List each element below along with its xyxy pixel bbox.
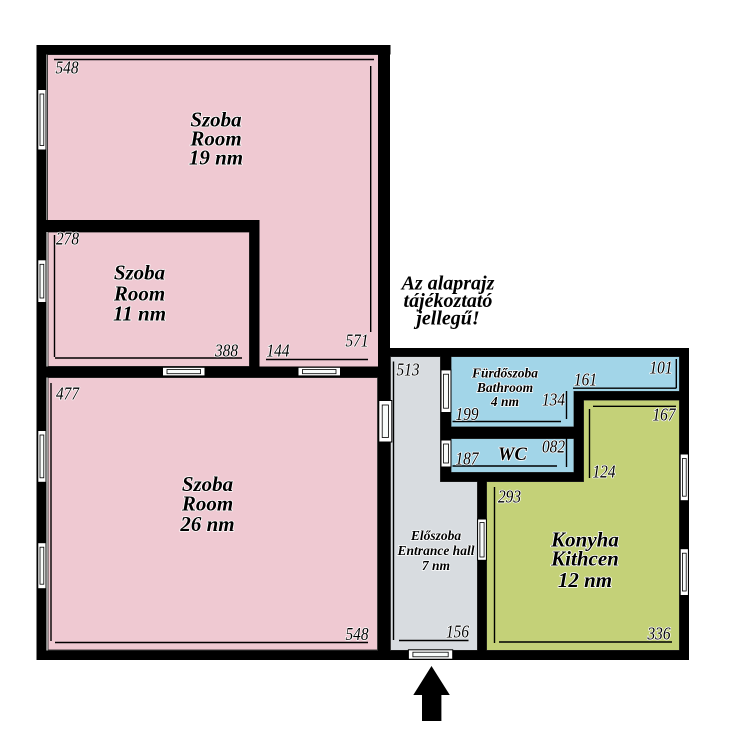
svg-text:336: 336	[647, 624, 671, 644]
svg-text:571: 571	[346, 331, 369, 351]
svg-text:134: 134	[542, 390, 565, 410]
svg-text:Bathroom: Bathroom	[476, 380, 533, 395]
svg-text:124: 124	[593, 462, 616, 482]
svg-text:548: 548	[346, 624, 369, 644]
svg-text:513: 513	[397, 360, 420, 380]
svg-text:Entrance hall: Entrance hall	[397, 543, 475, 558]
svg-text:199: 199	[456, 404, 479, 424]
svg-text:Fürdőszoba: Fürdőszoba	[471, 366, 538, 381]
svg-text:388: 388	[214, 341, 238, 361]
svg-text:548: 548	[56, 58, 79, 78]
svg-text:Előszoba: Előszoba	[410, 528, 462, 543]
svg-text:101: 101	[650, 358, 673, 378]
svg-text:19 nm: 19 nm	[189, 146, 243, 170]
svg-text:26 nm: 26 nm	[179, 512, 234, 536]
svg-text:293: 293	[498, 487, 521, 507]
svg-text:082: 082	[542, 437, 565, 457]
svg-text:7 nm: 7 nm	[422, 558, 450, 573]
svg-text:WC: WC	[498, 445, 527, 465]
svg-text:144: 144	[267, 341, 290, 361]
svg-text:4 nm: 4 nm	[490, 394, 519, 409]
svg-text:187: 187	[456, 449, 480, 469]
svg-text:477: 477	[56, 384, 80, 404]
svg-text:jellegű!: jellegű!	[413, 308, 479, 330]
svg-text:11 nm: 11 nm	[113, 301, 166, 325]
svg-text:12 nm: 12 nm	[558, 568, 612, 592]
svg-text:278: 278	[56, 229, 79, 249]
svg-text:161: 161	[574, 370, 597, 390]
svg-text:167: 167	[653, 405, 677, 425]
svg-text:156: 156	[446, 622, 469, 642]
